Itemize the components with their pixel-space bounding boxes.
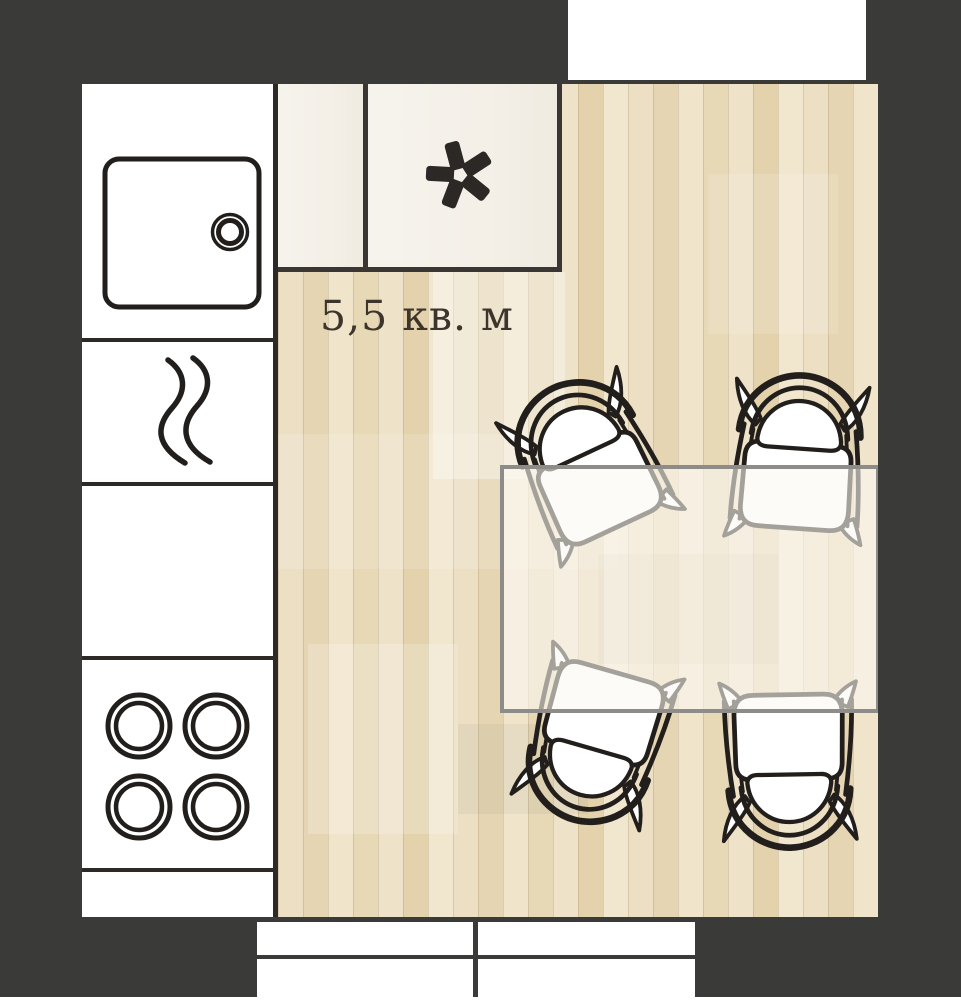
kitchen-counter <box>82 84 278 917</box>
counter-divider <box>82 482 273 486</box>
counter-fixtures <box>82 84 268 917</box>
snowflake-asterisk-icon <box>368 84 552 267</box>
cooktop-burners-icon <box>108 695 247 838</box>
wall-cabinets <box>273 84 562 272</box>
wall-segment-top <box>0 0 568 84</box>
area-label: 5,5 кв. м <box>320 292 514 340</box>
cabinet-door <box>478 922 695 955</box>
wall-segment-left <box>0 0 82 997</box>
wall-segment-right <box>878 0 961 997</box>
freezer-cabinet <box>368 84 557 267</box>
cabinet-door <box>257 922 473 955</box>
dining-table <box>502 467 878 711</box>
heat-wave-icon <box>161 358 210 463</box>
counter-divider <box>82 868 273 872</box>
kitchen-floorplan: 5,5 кв. м <box>0 0 961 1000</box>
sink-icon <box>105 159 259 307</box>
wall-cabinet <box>273 84 368 267</box>
counter-divider <box>82 656 273 660</box>
base-cabinets <box>257 922 695 997</box>
room-top-border <box>540 80 878 84</box>
cabinet-door <box>257 959 473 997</box>
cabinet-door <box>478 959 695 997</box>
counter-divider <box>82 338 273 342</box>
